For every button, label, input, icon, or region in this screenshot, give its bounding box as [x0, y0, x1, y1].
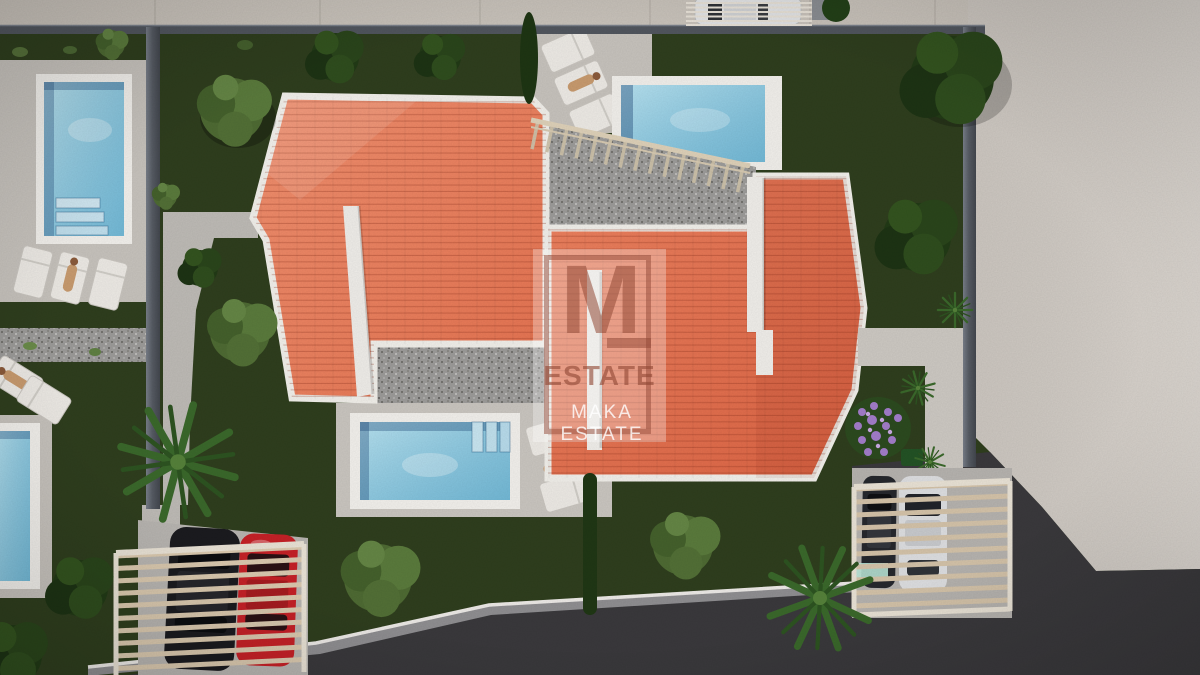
aerial-render-scene: M ESTATE MAKA ESTATE [0, 0, 1200, 675]
render-canvas [0, 0, 1200, 675]
vignette [0, 0, 1200, 675]
